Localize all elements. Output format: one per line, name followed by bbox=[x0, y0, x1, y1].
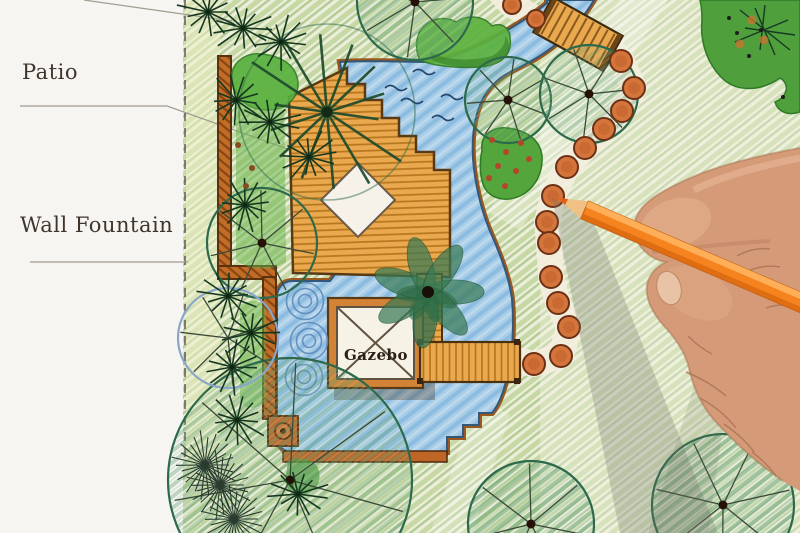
plan-drawing bbox=[0, 0, 800, 533]
boardwalk bbox=[417, 339, 520, 384]
wheel-tree bbox=[465, 57, 551, 143]
label-wall-fountain: Wall Fountain bbox=[20, 213, 173, 237]
photo-garden-design-plan: Patio Wall Fountain Gazebo bbox=[0, 0, 800, 533]
label-gazebo: Gazebo bbox=[336, 346, 416, 364]
label-patio: Patio bbox=[22, 60, 78, 84]
